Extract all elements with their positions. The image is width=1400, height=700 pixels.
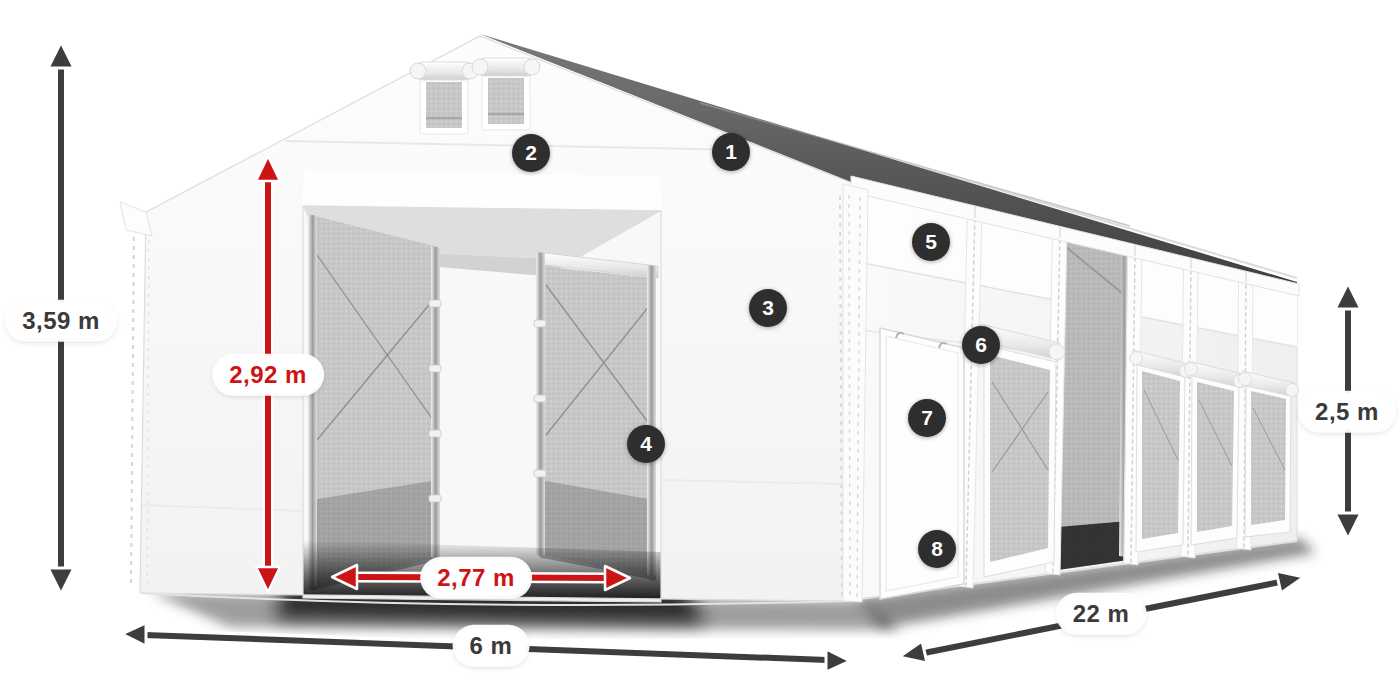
feature-badge-1: 1	[712, 133, 750, 171]
tent-dimension-diagram: 3,59 m 2,92 m 2,77 m 6 m 22 m 2,5 m 1 2 …	[0, 0, 1400, 700]
open-side-section	[1058, 240, 1131, 570]
dimension-label-total-height: 3,59 m	[8, 303, 114, 339]
feature-badge-3: 3	[749, 289, 787, 327]
feature-badge-8: 8	[918, 530, 956, 568]
feature-badge-2: 2	[512, 134, 550, 172]
dimension-label-front-width: 6 m	[456, 628, 527, 664]
feature-badge-4: 4	[627, 425, 665, 463]
dimension-label-side-wall-height: 2,5 m	[1301, 394, 1393, 430]
tent-illustration	[0, 0, 1400, 700]
gable-vent-right	[472, 58, 540, 130]
side-window-2	[1130, 350, 1193, 552]
dimension-label-side-length: 22 m	[1059, 596, 1144, 632]
side-window-4	[1239, 371, 1299, 537]
dimension-label-entrance-width: 2,77 m	[423, 560, 529, 596]
feature-badge-6: 6	[962, 326, 1000, 364]
feature-badge-7: 7	[908, 399, 946, 437]
feature-badge-5: 5	[912, 223, 950, 261]
dimension-label-entrance-height: 2,92 m	[215, 357, 321, 393]
side-window-3	[1185, 361, 1247, 545]
gable-vent-left	[410, 62, 478, 134]
entrance-interior	[303, 206, 661, 602]
